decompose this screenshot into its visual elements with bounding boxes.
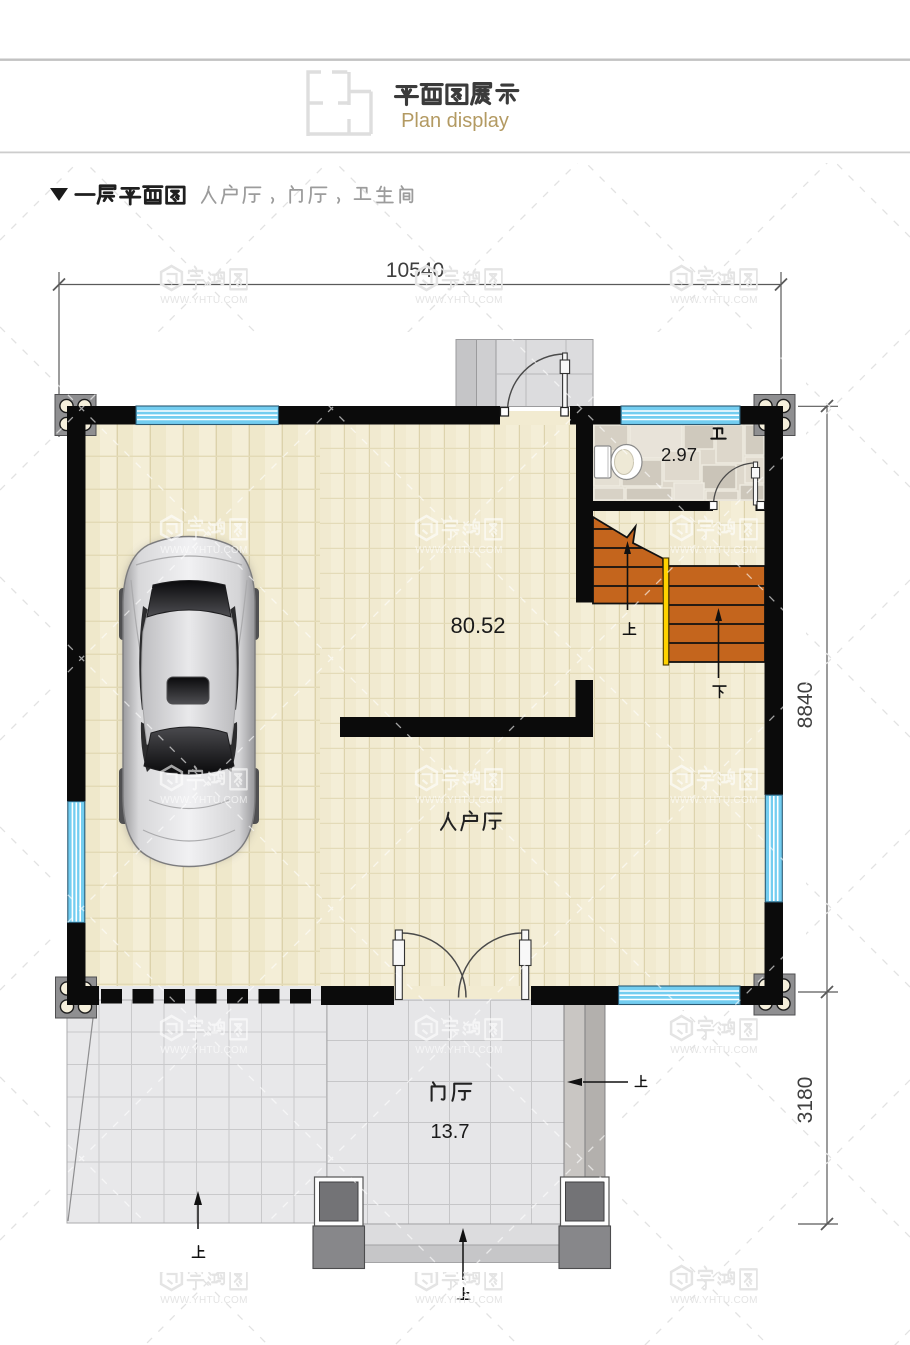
svg-text:WWW.YHTU.COM: WWW.YHTU.COM [160,545,247,556]
svg-text:WWW.YHTU.COM: WWW.YHTU.COM [160,295,247,306]
svg-text:13.7: 13.7 [431,1121,470,1143]
svg-text:WWW.YHTU.COM: WWW.YHTU.COM [415,1045,502,1056]
svg-text:WWW.YHTU.COM: WWW.YHTU.COM [415,295,502,306]
svg-text:80.52: 80.52 [450,613,505,638]
svg-text:Plan display: Plan display [401,110,509,132]
svg-text:WWW.YHTU.COM: WWW.YHTU.COM [670,1045,757,1056]
svg-text:WWW.YHTU.COM: WWW.YHTU.COM [160,1045,247,1056]
svg-text:WWW.YHTU.COM: WWW.YHTU.COM [415,795,502,806]
svg-text:3180: 3180 [794,1077,817,1124]
svg-text:WWW.YHTU.COM: WWW.YHTU.COM [160,1295,247,1306]
svg-text:8840: 8840 [794,682,817,729]
svg-text:WWW.YHTU.COM: WWW.YHTU.COM [670,545,757,556]
svg-text:2.97: 2.97 [661,444,697,465]
svg-text:WWW.YHTU.COM: WWW.YHTU.COM [415,545,502,556]
svg-text:WWW.YHTU.COM: WWW.YHTU.COM [670,795,757,806]
svg-text:WWW.YHTU.COM: WWW.YHTU.COM [670,295,757,306]
svg-text:WWW.YHTU.COM: WWW.YHTU.COM [160,795,247,806]
svg-text:WWW.YHTU.COM: WWW.YHTU.COM [670,1295,757,1306]
svg-text:WWW.YHTU.COM: WWW.YHTU.COM [415,1295,502,1306]
